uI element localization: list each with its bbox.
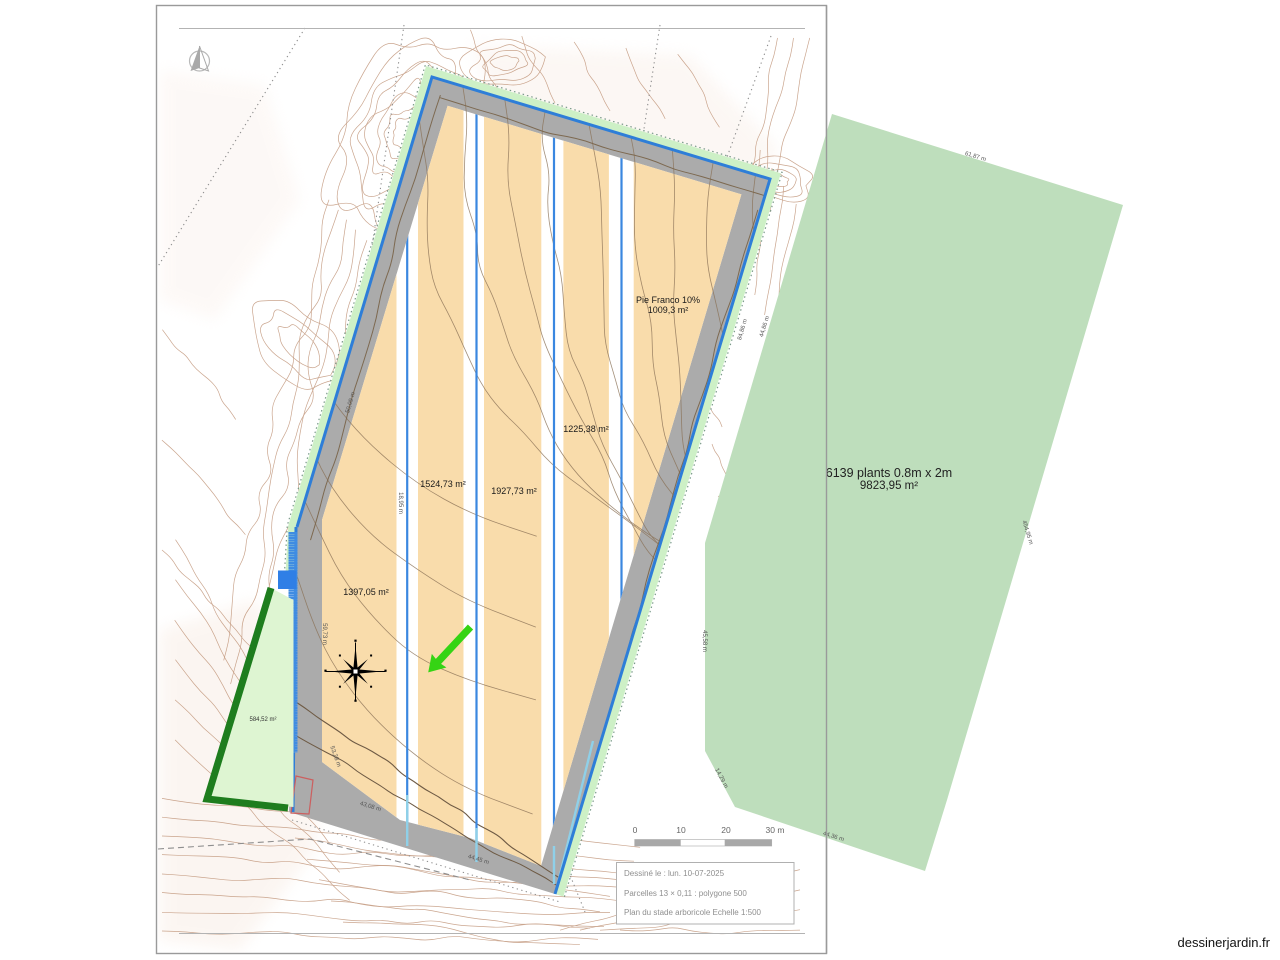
svg-text:0: 0 (633, 825, 638, 835)
svg-text:30 m: 30 m (766, 825, 785, 835)
svg-text:1225,38 m²: 1225,38 m² (563, 424, 609, 434)
svg-text:6139 plants 0.8m x 2m: 6139 plants 0.8m x 2m (826, 466, 952, 480)
svg-text:1397,05 m²: 1397,05 m² (343, 587, 389, 597)
svg-text:1927,73 m²: 1927,73 m² (491, 486, 537, 496)
svg-text:Dessiné le : lun. 10-07-2025: Dessiné le : lun. 10-07-2025 (624, 869, 725, 878)
svg-text:Plan du stade arboricole Ech: Plan du stade arboricole Echelle 1:500 (624, 908, 762, 917)
svg-text:59,73 m: 59,73 m (321, 623, 327, 645)
svg-text:9823,95 m²: 9823,95 m² (860, 480, 918, 492)
svg-text:18,95 m: 18,95 m (397, 492, 403, 514)
svg-text:10: 10 (676, 825, 686, 835)
svg-text:584,52 m²: 584,52 m² (249, 717, 276, 723)
svg-text:20: 20 (721, 825, 731, 835)
svg-text:1524,73 m²: 1524,73 m² (420, 479, 466, 489)
svg-text:1009,3 m²: 1009,3 m² (648, 305, 689, 315)
svg-text:45,58 m: 45,58 m (701, 630, 707, 652)
svg-text:Parcelles 13 × 0,11 : polygon: Parcelles 13 × 0,11 : polygone 500 (624, 889, 747, 898)
svg-text:Pie Franco 10%: Pie Franco 10% (636, 295, 700, 305)
svg-text:dessinerjardin.fr: dessinerjardin.fr (1178, 935, 1271, 950)
